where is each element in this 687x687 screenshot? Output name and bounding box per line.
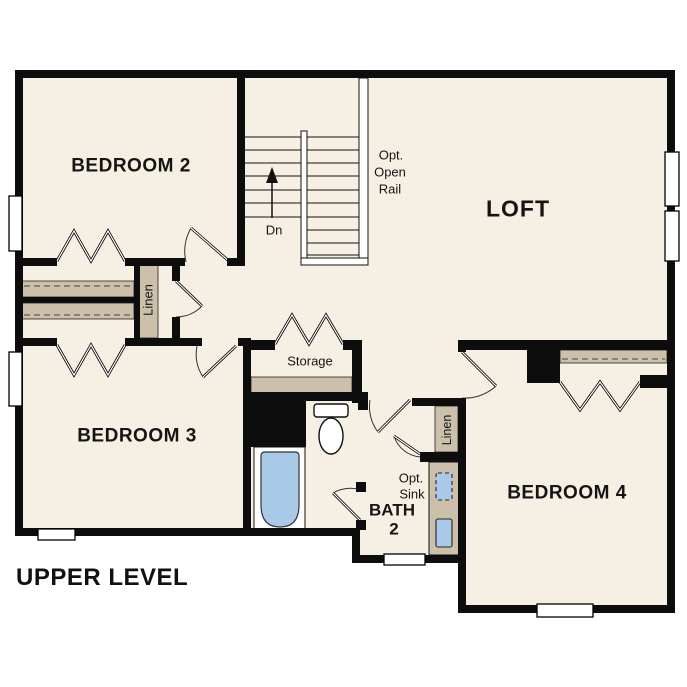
linen-hall-label: Linen [142,284,155,316]
stair-bottom-rail [301,258,368,265]
opt-sink-line1: Opt. [399,472,424,485]
linen-bath-label: Linen [441,415,454,446]
window-bedroom3 [38,529,75,540]
bedroom3-label: BEDROOM 3 [77,427,197,446]
storage-label: Storage [287,355,333,368]
opt-open-rail-line2: Open [374,166,406,179]
bathtub [261,452,299,527]
opt-open-rail-line1: Opt. [379,149,404,162]
opt-open-rail-line3: Rail [379,183,401,196]
stair-center-rail [301,131,307,265]
bedroom4-label: BEDROOM 4 [507,484,627,503]
window-bath2 [384,554,425,565]
closet-rod-bedroom3 [22,303,134,319]
opt-sink-line2: Sink [399,488,424,501]
page-title: UPPER LEVEL [16,564,188,592]
storage-shelf [251,377,352,393]
stair-open-rail [359,78,368,265]
closet-rod-bedroom2 [22,281,134,297]
bedroom2-label: BEDROOM 2 [71,157,191,176]
bath2-label-line2: 2 [389,521,398,538]
window-bedroom4 [537,604,593,617]
bath2-label-line1: BATH [369,502,415,519]
window-right-upper [665,152,679,206]
window-right-lower [665,211,679,261]
window-left-lower [9,352,22,406]
loft-label: LOFT [486,198,550,221]
sink [436,519,452,547]
closet-divider-wall [22,297,134,303]
floor-plan: BEDROOM 2 LOFT BEDROOM 3 BEDROOM 4 BATH … [0,0,687,687]
optional-sink [436,473,452,500]
closet-rod-bedroom4 [560,350,667,363]
stairs-dn-label: Dn [266,224,283,237]
window-left-upper [9,196,22,251]
